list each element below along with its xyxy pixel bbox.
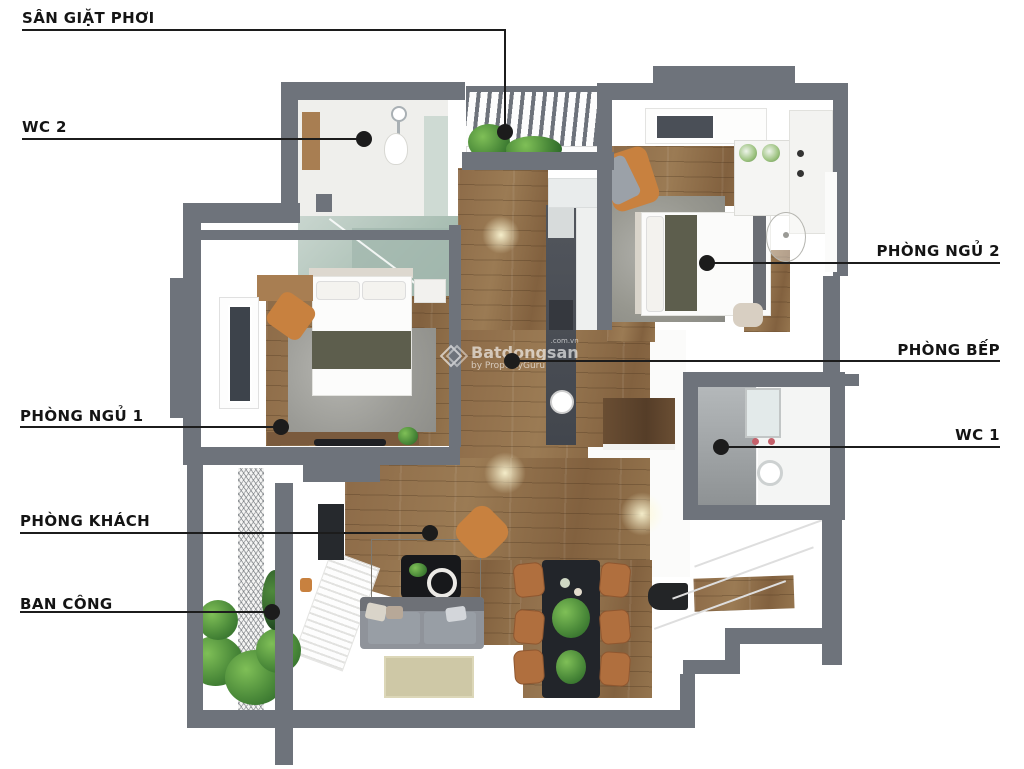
wall-bedroom1-left-ledge <box>170 278 183 418</box>
bedroom1-nightstand <box>414 279 446 303</box>
label-wc-1: WC 1 <box>955 427 1000 444</box>
marker-ban-cong <box>264 604 280 620</box>
bedroom2-bed-runner <box>665 215 697 311</box>
sofa-pillow-2 <box>386 606 403 619</box>
label-phong-ngu-2: PHÒNG NGỦ 2 <box>877 243 1001 260</box>
wall-wc1-bottom <box>683 505 833 520</box>
wall-bedroom1-inner-top <box>200 230 456 240</box>
kitchen-shelf <box>548 208 574 238</box>
wall-wc2-door-stub <box>316 194 332 212</box>
wc2-toilet <box>384 133 408 165</box>
wall-balcony-door-header <box>303 462 380 482</box>
wall-wc2-top <box>281 82 465 100</box>
bedroom2-flowers-1 <box>739 144 757 162</box>
wall-bedroom1-right <box>449 225 461 447</box>
bedroom1-bed-runner <box>312 331 411 369</box>
label-san-giat-phoi: SÂN GIẶT PHƠI <box>22 10 155 27</box>
label-ban-cong: BAN CÔNG <box>20 596 113 613</box>
leader-phong-ngu-1 <box>20 426 281 428</box>
balcony-plant-4 <box>198 600 238 640</box>
bedroom2-vanity-item-1 <box>797 150 804 157</box>
marker-san-giat-phoi <box>497 124 513 140</box>
dining-plant-1 <box>552 598 590 638</box>
kitchen-sink <box>550 390 574 414</box>
bedroom2-fan-hub <box>783 232 789 238</box>
marker-phong-ngu-2 <box>699 255 715 271</box>
wc2-glass-panel <box>424 116 448 216</box>
wall-entry-right <box>822 515 842 665</box>
wall-balcony-left <box>187 455 203 710</box>
leader-san-giat-phoi-h <box>22 29 506 31</box>
living-rug <box>384 656 474 698</box>
marker-wc-2 <box>356 131 372 147</box>
wall-bottom <box>187 710 695 728</box>
bedroom1-tv <box>314 439 386 446</box>
sofa-pillow-3 <box>445 606 467 623</box>
floor-plan-image: .com.vn Batdongsan by PropertyGuru SÂN G… <box>0 0 1024 769</box>
marker-phong-bep <box>504 353 520 369</box>
label-wc-2: WC 2 <box>22 119 67 136</box>
wall-drying-bottom <box>462 152 614 170</box>
bedroom1-pillow-right <box>362 281 406 300</box>
bedroom1-pillow-left <box>316 281 360 300</box>
entry-walkway <box>693 575 794 611</box>
light-glow-living <box>620 492 664 536</box>
marker-phong-ngu-1 <box>273 419 289 435</box>
dining-dish-2 <box>574 588 582 596</box>
wall-bedroom2-left <box>597 83 612 330</box>
watermark-byline: by PropertyGuru <box>471 362 579 372</box>
balcony-watering-can <box>300 578 312 592</box>
kitchen-hob <box>549 300 573 330</box>
wc1-flower-1 <box>752 438 759 445</box>
wall-wc1-top <box>683 372 845 387</box>
marker-phong-khach <box>422 525 438 541</box>
leader-phong-ngu-2 <box>707 262 1000 264</box>
kitchen-wood-cabinets <box>603 398 675 447</box>
dining-chair-r1 <box>598 562 631 599</box>
wc1-flower-2 <box>768 438 775 445</box>
wall-bedroom2-top <box>597 83 848 100</box>
leader-phong-khach <box>20 532 430 534</box>
light-glow-corridor-1 <box>482 216 520 254</box>
marker-wc-1 <box>713 439 729 455</box>
dining-dish-1 <box>560 578 570 588</box>
bedroom2-flowers-2 <box>762 144 780 162</box>
leader-san-giat-phoi-v <box>504 29 506 133</box>
wc2-cabinet <box>302 112 320 170</box>
bedroom2-window-pane <box>655 114 715 140</box>
dining-chair-r2 <box>599 609 632 645</box>
wall-entry-step1 <box>725 628 825 644</box>
wall-wc1-stub <box>845 374 859 386</box>
wall-entry-step3 <box>683 660 740 674</box>
leader-wc-1 <box>721 446 1000 448</box>
kitchen-cabinet-edge <box>603 444 675 450</box>
bedroom2-wall-niche <box>825 172 837 272</box>
coffee-table-plant <box>409 563 427 577</box>
bedroom2-pouf <box>733 303 763 327</box>
watermark-logo-icon <box>443 344 465 366</box>
wc1-sink <box>757 460 783 486</box>
bedroom1-window-glass <box>228 305 252 403</box>
dining-chair-l2 <box>513 609 546 645</box>
leader-wc-2 <box>22 138 364 140</box>
wall-balcony-divider <box>275 483 293 765</box>
label-phong-bep: PHÒNG BẾP <box>897 342 1000 359</box>
label-phong-ngu-1: PHÒNG NGỦ 1 <box>20 408 144 425</box>
dining-chair-l3 <box>513 649 545 685</box>
wall-wc1-left <box>683 372 698 520</box>
label-phong-khach: PHÒNG KHÁCH <box>20 513 150 530</box>
bedroom1-plant <box>398 427 418 445</box>
entry-step-edge-1 <box>694 514 836 567</box>
wc2-shower-head <box>391 106 407 122</box>
wc1-mirror <box>745 388 781 438</box>
bedroom2-pillows <box>646 216 664 312</box>
dining-chair-r3 <box>599 651 631 687</box>
entry-door-mat <box>648 583 688 610</box>
light-glow-corridor-2 <box>484 452 526 494</box>
wall-bedroom2-notch <box>653 66 795 83</box>
leader-phong-bep <box>512 360 1000 362</box>
wall-wc2-left <box>281 82 298 216</box>
bedroom2-vanity-item-2 <box>797 170 804 177</box>
dining-chair-l1 <box>512 562 545 599</box>
drying-rack-bar <box>466 86 600 92</box>
dining-plant-2 <box>556 650 586 684</box>
coffee-table-tray <box>427 568 457 598</box>
